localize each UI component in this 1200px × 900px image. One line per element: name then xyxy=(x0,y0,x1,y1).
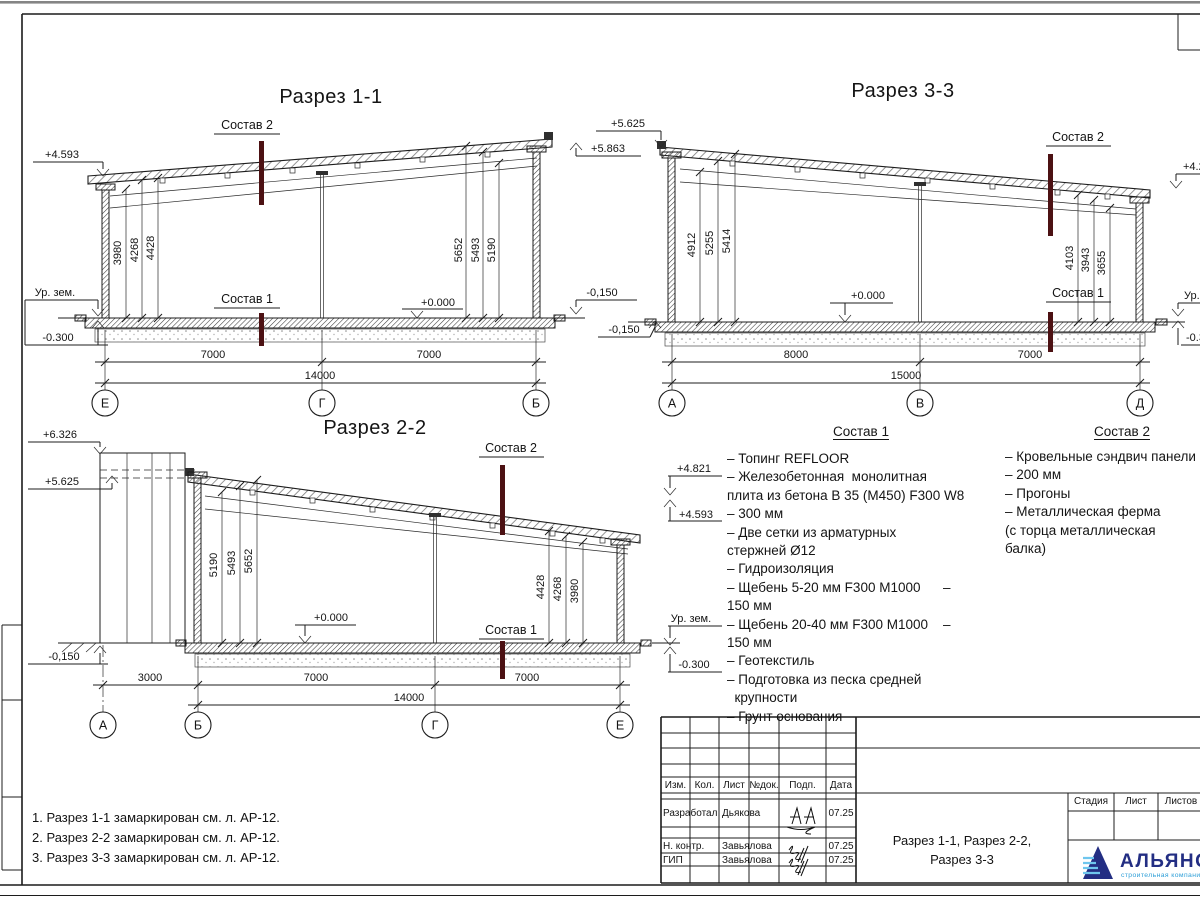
svg-text:Ур. зем.: Ур. зем. xyxy=(35,287,75,299)
svg-text:4103: 4103 xyxy=(1064,246,1076,270)
svg-text:3943: 3943 xyxy=(1080,248,1092,272)
section-3-3: 4912 5255 5414 4103 3943 3655 +0.000 Сос… xyxy=(596,118,1200,416)
listov-header: Листов xyxy=(1158,796,1200,807)
svg-text:7000: 7000 xyxy=(515,672,539,684)
sostav2-list: – Кровельные сэндвич панели – 200 мм – П… xyxy=(1005,448,1200,558)
sub-base xyxy=(95,329,545,342)
list-item: – 200 мм xyxy=(1005,466,1200,484)
titleblock-header-izm: Изм. xyxy=(661,780,690,791)
list-item: балка) xyxy=(1005,540,1200,558)
svg-text:Состав 1: Состав 1 xyxy=(485,623,537,637)
titleblock-header-list: Лист xyxy=(719,780,749,791)
titleblock-role: Н. контр. xyxy=(663,841,704,852)
svg-text:4912: 4912 xyxy=(686,233,698,257)
drawing-sheet: 3980 4268 4428 5652 5493 5190 +0.000 Сос… xyxy=(0,0,1200,900)
wall-right xyxy=(533,152,540,318)
svg-text:Ур. зем.: Ур. зем. xyxy=(671,613,711,625)
list-item: – Гидроизоляция xyxy=(727,560,1005,578)
list-item: – Грунт основания xyxy=(727,708,1005,726)
dims-left: 3980 4268 4428 xyxy=(112,174,162,322)
note-line: 1. Разрез 1-1 замаркирован см. л. АР-12. xyxy=(32,808,280,828)
svg-text:4268: 4268 xyxy=(552,577,564,601)
svg-text:5652: 5652 xyxy=(453,238,465,262)
signature-developer xyxy=(787,808,815,834)
section-3-3-title: Разрез 3-3 xyxy=(823,80,983,103)
top-right-box xyxy=(1178,14,1200,50)
titleblock-header-data: Дата xyxy=(826,780,856,791)
svg-text:8000: 8000 xyxy=(784,349,808,361)
svg-text:+0.000: +0.000 xyxy=(314,612,348,624)
svg-text:-0.300: -0.300 xyxy=(678,659,709,671)
svg-text:Состав 1: Состав 1 xyxy=(1052,286,1104,300)
svg-text:Г: Г xyxy=(432,719,439,733)
wall-left xyxy=(194,478,201,643)
list-item: 150 мм xyxy=(727,597,1005,615)
floor-slab xyxy=(85,318,555,328)
sostav1-block-title: Состав 1 xyxy=(806,424,916,439)
section-2-2-title: Разрез 2-2 xyxy=(295,417,455,440)
svg-text:Состав 1: Состав 1 xyxy=(221,292,273,306)
section-1-1: 3980 4268 4428 5652 5493 5190 +0.000 Сос… xyxy=(25,118,641,416)
svg-text:3000: 3000 xyxy=(138,672,162,684)
floor-slab xyxy=(655,322,1155,332)
svg-text:Состав 2: Состав 2 xyxy=(485,441,537,455)
section-1-1-title: Разрез 1-1 xyxy=(251,86,411,109)
titleblock-name: Завьялова xyxy=(722,855,772,866)
list-item: – Подготовка из песка средней xyxy=(727,671,1005,689)
list-item: стержней Ø12 xyxy=(727,542,1005,560)
svg-text:+4.821: +4.821 xyxy=(677,463,711,475)
wall-left xyxy=(102,190,109,318)
svg-text:14000: 14000 xyxy=(305,370,336,382)
sub-base xyxy=(665,333,1145,346)
logo-text: АЛЬЯНС xyxy=(1120,851,1200,873)
svg-text:5255: 5255 xyxy=(704,231,716,255)
svg-text:5493: 5493 xyxy=(470,238,482,262)
note-line: 2. Разрез 2-2 замаркирован см. л. АР-12. xyxy=(32,828,280,848)
section-2-2: 5190 5493 5652 4428 4268 3980 +0.000 Сос… xyxy=(28,429,680,738)
sostav1-list: – Топинг REFLOOR – Железобетонная моноли… xyxy=(727,450,1005,726)
svg-text:Д: Д xyxy=(1136,397,1145,411)
zero-level-mark: +0.000 xyxy=(295,612,356,643)
svg-text:7000: 7000 xyxy=(1018,349,1042,361)
titleblock-header-kol: Кол. xyxy=(690,780,719,791)
signature-ncontrol xyxy=(789,846,808,863)
titleblock-date: 07.25 xyxy=(826,841,856,852)
wall-right xyxy=(1136,203,1143,322)
side-stamp-cells xyxy=(2,625,22,870)
list-item: крупности xyxy=(727,689,1005,707)
svg-text:15000: 15000 xyxy=(891,370,922,382)
svg-text:-0,150: -0,150 xyxy=(586,287,617,299)
titleblock-header-ndok: №док. xyxy=(749,780,779,791)
svg-text:+5.863: +5.863 xyxy=(591,143,625,155)
titleblock-header-podp: Подп. xyxy=(779,780,826,791)
svg-text:А: А xyxy=(668,397,677,411)
svg-text:-0,150: -0,150 xyxy=(608,324,639,336)
svg-text:+4.593: +4.593 xyxy=(679,509,713,521)
svg-text:Е: Е xyxy=(616,719,624,733)
zero-level-mark: +0.000 xyxy=(830,290,893,322)
titleblock-date: 07.25 xyxy=(826,855,856,866)
sub-base xyxy=(195,654,630,667)
svg-text:+5.625: +5.625 xyxy=(45,476,79,488)
svg-text:5190: 5190 xyxy=(486,238,498,262)
svg-text:+4.593: +4.593 xyxy=(45,149,79,161)
list-item: – Металлическая ферма xyxy=(1005,503,1200,521)
end-wall-panel xyxy=(100,453,185,643)
svg-text:5414: 5414 xyxy=(721,229,733,253)
titleblock-date: 07.25 xyxy=(826,808,856,819)
note-line: 3. Разрез 3-3 замаркирован см. л. АР-12. xyxy=(32,848,280,868)
list-header: Лист xyxy=(1114,796,1158,807)
svg-text:3980: 3980 xyxy=(569,579,581,603)
svg-text:14000: 14000 xyxy=(394,692,425,704)
list-item: 150 мм xyxy=(727,634,1005,652)
list-item: – Две сетки из арматурных xyxy=(727,524,1005,542)
svg-text:+0.000: +0.000 xyxy=(851,290,885,302)
dims-left: 5190 5493 5652 xyxy=(208,476,261,647)
roof-panel xyxy=(660,147,1150,198)
notes: 1. Разрез 1-1 замаркирован см. л. АР-12.… xyxy=(32,808,280,868)
titleblock-role: Разработал xyxy=(663,808,717,819)
svg-text:4428: 4428 xyxy=(535,575,547,599)
dims-right: 5652 5493 5190 xyxy=(453,142,503,322)
svg-text:А: А xyxy=(99,719,108,733)
svg-text:+4.2: +4.2 xyxy=(1183,161,1200,173)
svg-text:Состав 2: Состав 2 xyxy=(221,118,273,132)
doc-title: Разрез 1-1, Разрез 2-2, Разрез 3-3 xyxy=(858,831,1066,869)
svg-text:Е: Е xyxy=(101,397,109,411)
svg-text:-0.300: -0.300 xyxy=(42,332,73,344)
elevation-marks: +6.326 +5.625 -0,150 xyxy=(28,429,118,664)
list-item: – 300 мм xyxy=(727,505,1005,523)
titleblock-name: Дьякова xyxy=(722,808,760,819)
svg-text:4428: 4428 xyxy=(145,236,157,260)
wall-right xyxy=(617,545,624,643)
sostav2-block-title: Состав 2 xyxy=(1067,424,1177,439)
svg-text:В: В xyxy=(916,397,924,411)
svg-text:+0.000: +0.000 xyxy=(421,297,455,309)
list-item: плита из бетона В 35 (М450) F300 W8 xyxy=(727,487,1005,505)
bottom-dims: 7000 7000 14000 Е Г Б xyxy=(92,330,549,416)
svg-text:Состав 2: Состав 2 xyxy=(1052,130,1104,144)
svg-text:Г: Г xyxy=(319,397,326,411)
list-item: (с торца металлическая xyxy=(1005,522,1200,540)
svg-text:5190: 5190 xyxy=(208,553,220,577)
svg-text:7000: 7000 xyxy=(304,672,328,684)
roof-panel xyxy=(188,474,640,543)
dims-left: 4912 5255 5414 xyxy=(686,150,739,326)
list-item: – Щебень 5-20 мм F300 М1000 – xyxy=(727,579,1005,597)
list-item: – Прогоны xyxy=(1005,485,1200,503)
svg-text:5652: 5652 xyxy=(243,549,255,573)
list-item: – Щебень 20-40 мм F300 М1000 – xyxy=(727,616,1005,634)
svg-text:-0,150: -0,150 xyxy=(48,651,79,663)
svg-text:5493: 5493 xyxy=(226,551,238,575)
list-item: – Железобетонная монолитная xyxy=(727,468,1005,486)
svg-text:Б: Б xyxy=(194,719,202,733)
zero-level-mark: +0.000 xyxy=(402,297,463,318)
stage-header: Стадия xyxy=(1068,796,1114,807)
svg-text:3655: 3655 xyxy=(1096,251,1108,275)
list-item: – Топинг REFLOOR xyxy=(727,450,1005,468)
titleblock-role: ГИП xyxy=(663,855,683,866)
svg-text:+5.625: +5.625 xyxy=(611,118,645,130)
list-item: – Геотекстиль xyxy=(727,652,1005,670)
list-item: – Кровельные сэндвич панели xyxy=(1005,448,1200,466)
titleblock-name: Завьялова xyxy=(722,841,772,852)
logo-subtitle: строительная компания xyxy=(1121,872,1200,879)
svg-text:7000: 7000 xyxy=(417,349,441,361)
svg-text:Б: Б xyxy=(532,397,540,411)
svg-text:3980: 3980 xyxy=(112,241,124,265)
svg-text:7000: 7000 xyxy=(201,349,225,361)
sostav1-elevation-marks: +4.821 +4.593 Ур. зем. -0.300 xyxy=(664,463,722,672)
svg-text:4268: 4268 xyxy=(129,238,141,262)
svg-text:+6.326: +6.326 xyxy=(43,429,77,441)
floor-slab xyxy=(185,643,640,653)
svg-text:-0.3: -0.3 xyxy=(1186,332,1200,344)
logo-icon xyxy=(1083,846,1113,879)
wall-left xyxy=(668,158,675,322)
svg-text:Ур.: Ур. xyxy=(1184,290,1200,302)
